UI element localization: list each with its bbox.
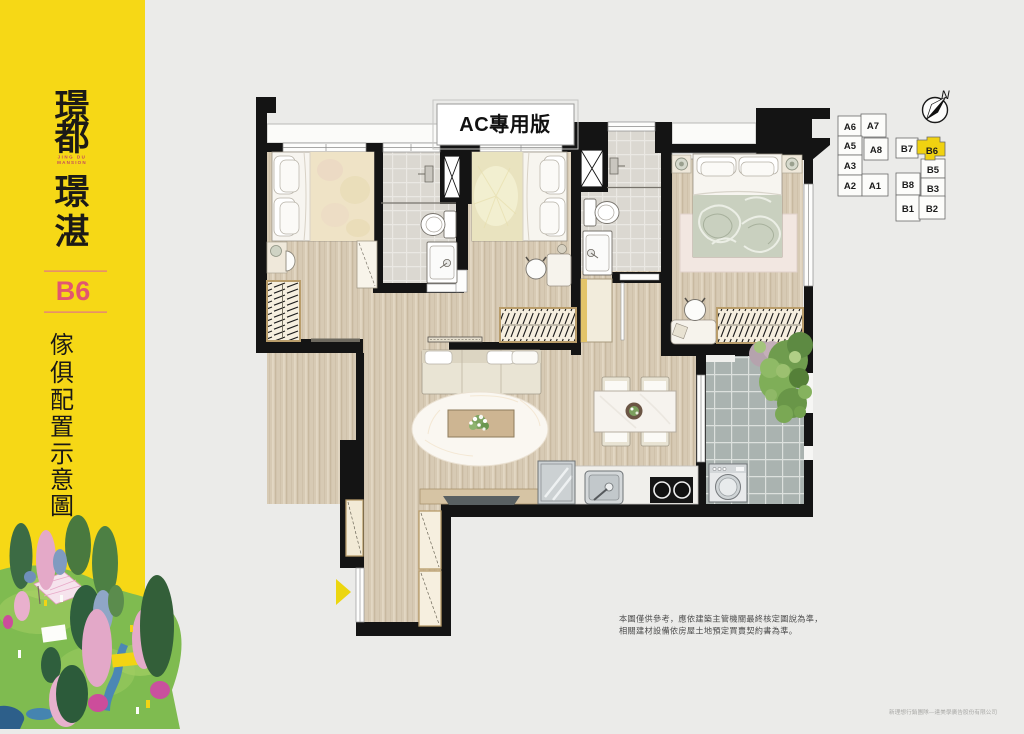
svg-text:圖: 圖 bbox=[50, 493, 74, 520]
svg-text:置: 置 bbox=[50, 414, 74, 441]
svg-text:A3: A3 bbox=[844, 161, 856, 172]
svg-text:傢: 傢 bbox=[50, 332, 74, 359]
svg-text:俱: 俱 bbox=[50, 360, 74, 387]
svg-text:B6: B6 bbox=[56, 276, 91, 306]
svg-text:JING DU: JING DU bbox=[58, 155, 87, 160]
svg-text:B1: B1 bbox=[902, 204, 915, 215]
svg-text:新理想行銷團隊—達美學廣告股份有限公司: 新理想行銷團隊—達美學廣告股份有限公司 bbox=[889, 708, 997, 716]
svg-text:B7: B7 bbox=[901, 144, 913, 155]
svg-text:B8: B8 bbox=[902, 180, 914, 191]
svg-text:湛: 湛 bbox=[54, 213, 89, 252]
svg-text:A5: A5 bbox=[844, 141, 857, 152]
svg-text:N: N bbox=[941, 88, 950, 102]
svg-text:本圖僅供參考，應依建築主管機關最終核定圖說為準，: 本圖僅供參考，應依建築主管機關最終核定圖說為準， bbox=[619, 614, 823, 624]
svg-text:示: 示 bbox=[50, 441, 74, 468]
svg-text:意: 意 bbox=[50, 467, 74, 494]
svg-text:A2: A2 bbox=[844, 181, 856, 192]
svg-text:A6: A6 bbox=[844, 122, 856, 133]
svg-text:MANSION: MANSION bbox=[57, 160, 87, 165]
svg-text:B2: B2 bbox=[926, 204, 938, 215]
svg-text:都: 都 bbox=[53, 119, 89, 158]
svg-text:璟: 璟 bbox=[54, 173, 89, 212]
svg-text:A1: A1 bbox=[869, 181, 882, 192]
svg-text:A7: A7 bbox=[867, 121, 879, 132]
svg-text:B3: B3 bbox=[927, 184, 939, 195]
svg-text:相關建材設備依房屋土地預定買賣契約書為準。: 相關建材設備依房屋土地預定買賣契約書為準。 bbox=[619, 626, 797, 636]
svg-text:B6: B6 bbox=[926, 146, 938, 157]
svg-text:A8: A8 bbox=[870, 145, 882, 156]
svg-text:B5: B5 bbox=[927, 165, 940, 176]
svg-text:配: 配 bbox=[50, 387, 74, 414]
svg-text:AC專用版: AC專用版 bbox=[459, 112, 550, 136]
